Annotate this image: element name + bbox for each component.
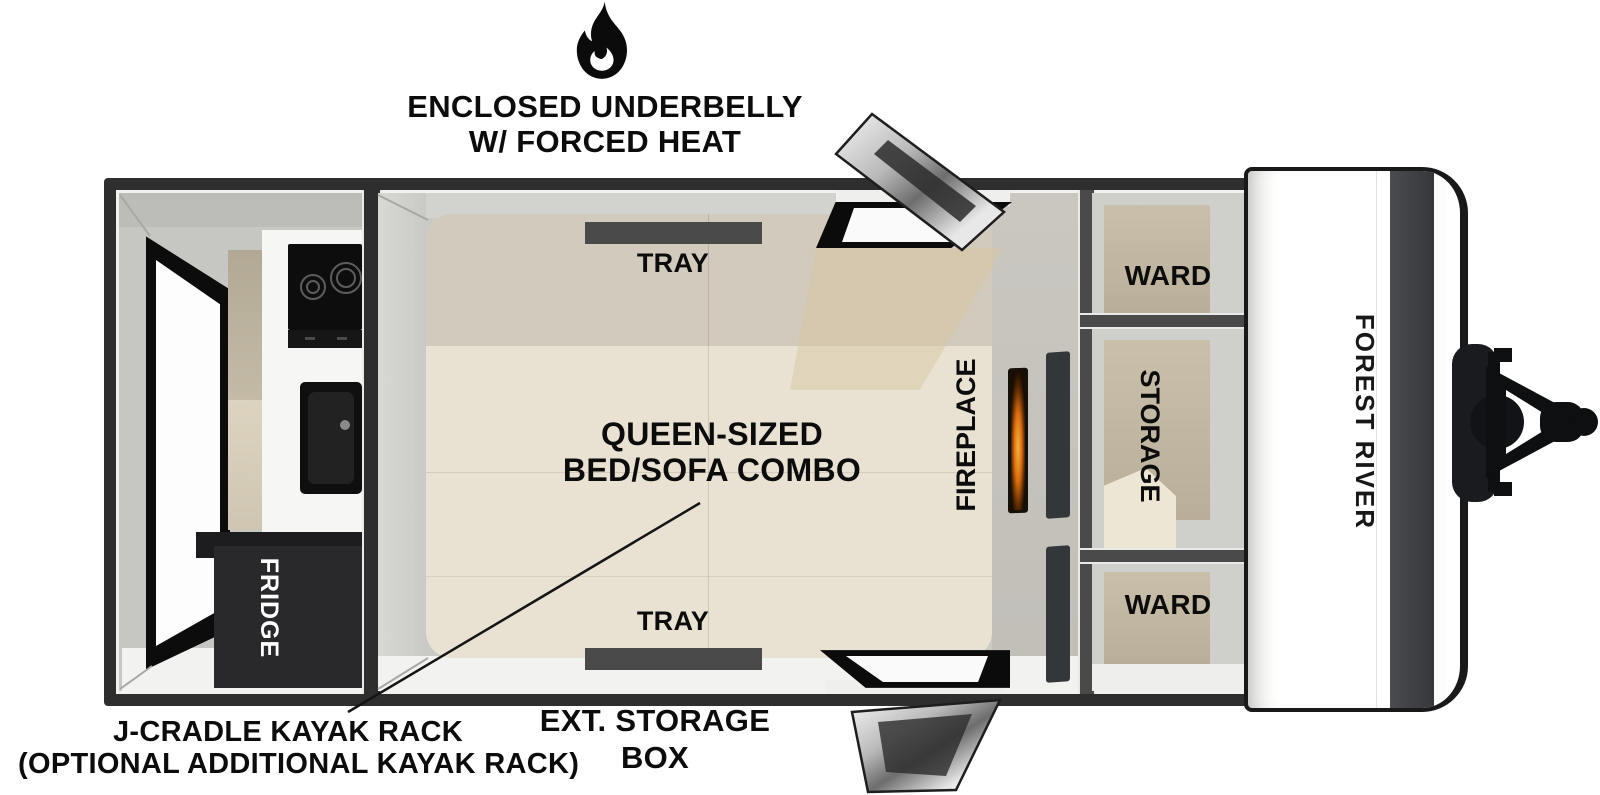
tray-bottom-label: TRAY bbox=[593, 606, 753, 636]
cooktop-knob bbox=[305, 337, 315, 340]
cap-stripe bbox=[1390, 171, 1434, 708]
kayak-rack-line2: (OPTIONAL ADDITIONAL KAYAK RACK) bbox=[18, 748, 558, 780]
cooktop-knob bbox=[337, 337, 347, 340]
flame-icon bbox=[572, 0, 630, 86]
underbelly-line2: W/ FORCED HEAT bbox=[370, 125, 840, 160]
fridge-label: FRIDGE bbox=[253, 543, 283, 673]
ward-bottom-floor bbox=[1092, 664, 1244, 691]
bed-label-line2: BED/SOFA COMBO bbox=[512, 452, 912, 488]
bed-label-line1: QUEEN-SIZED bbox=[512, 416, 912, 452]
burner-right-icon bbox=[330, 262, 362, 294]
underbelly-label: ENCLOSED UNDERBELLY W/ FORCED HEAT bbox=[370, 90, 840, 159]
kitchen-sink-basin bbox=[308, 392, 354, 484]
ext-storage-label: EXT. STORAGE BOX bbox=[520, 702, 790, 776]
storage-label: STORAGE bbox=[1135, 351, 1165, 521]
compartment-divider bbox=[1080, 313, 1244, 329]
bed-seam bbox=[426, 576, 992, 577]
fireplace-insert bbox=[1008, 368, 1028, 514]
fireplace-label: FIREPLACE bbox=[951, 340, 981, 530]
trailer-hitch bbox=[1452, 344, 1598, 502]
kayak-rack-line1: J-CRADLE KAYAK RACK bbox=[18, 716, 558, 748]
wall-panel bbox=[1046, 351, 1070, 519]
kitchen-cabinet-upper bbox=[228, 250, 262, 400]
wall-panel bbox=[1046, 545, 1070, 683]
storage-door-bottom-leaf bbox=[852, 700, 1000, 792]
ward-top-label: WARD bbox=[1092, 260, 1244, 291]
kitchen-wall-top bbox=[119, 193, 362, 227]
ext-storage-line1: EXT. STORAGE bbox=[520, 702, 790, 739]
underbelly-line1: ENCLOSED UNDERBELLY bbox=[370, 90, 840, 125]
kitchen-window bbox=[156, 252, 220, 654]
brand-label: FOREST RIVER bbox=[1350, 267, 1380, 577]
floorplan-canvas: ENCLOSED UNDERBELLY W/ FORCED HEAT FRIDG… bbox=[0, 0, 1600, 795]
fireplace-flame-icon bbox=[1011, 371, 1025, 510]
bed-label: QUEEN-SIZED BED/SOFA COMBO bbox=[512, 416, 912, 488]
ext-storage-line2: BOX bbox=[520, 739, 790, 776]
ward-top-interior bbox=[1104, 205, 1210, 313]
tray-bottom bbox=[585, 648, 762, 670]
tray-top bbox=[585, 222, 762, 244]
cap-stripe-accent bbox=[1434, 171, 1446, 708]
bedroom-wall-left bbox=[378, 193, 426, 691]
compartment-divider bbox=[1080, 548, 1244, 564]
ward-bottom-label: WARD bbox=[1092, 589, 1244, 620]
fridge-hinge bbox=[196, 532, 214, 558]
faucet-icon bbox=[340, 420, 350, 430]
cooktop-controls bbox=[288, 330, 362, 348]
kitchen-cabinet-lower bbox=[228, 400, 262, 530]
fridge-top-panel bbox=[214, 532, 362, 546]
burner-left-icon bbox=[300, 274, 326, 300]
fridge bbox=[214, 532, 362, 688]
tray-top-label: TRAY bbox=[593, 248, 753, 278]
kayak-rack-label: J-CRADLE KAYAK RACK (OPTIONAL ADDITIONAL… bbox=[18, 716, 558, 781]
